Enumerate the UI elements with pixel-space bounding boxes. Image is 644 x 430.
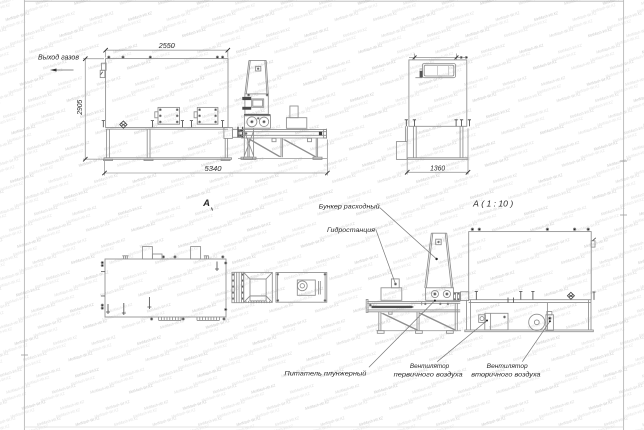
- svg-text:MetMash-Wr.KZ: MetMash-Wr.KZ: [638, 326, 644, 338]
- svg-text:Выход газов: Выход газов: [38, 53, 79, 62]
- svg-text:Питатель плунжерный: Питатель плунжерный: [284, 370, 366, 378]
- svg-text:Вентилятор: Вентилятор: [487, 363, 528, 370]
- svg-text:MetMash-Wr.KZ: MetMash-Wr.KZ: [0, 261, 6, 273]
- svg-text:Гидростанция: Гидростанция: [327, 226, 376, 234]
- svg-text:2905: 2905: [75, 99, 84, 116]
- svg-text:MetMash-Wr.KZ: MetMash-Wr.KZ: [0, 2, 11, 14]
- svg-text:Вентилятор: Вентилятор: [410, 363, 450, 370]
- svg-text:MetMash-Wr.KZ: MetMash-Wr.KZ: [637, 253, 644, 265]
- svg-text:5340: 5340: [205, 164, 223, 173]
- svg-text:А: А: [202, 198, 210, 209]
- svg-text:MetMash-Wr.KZ: MetMash-Wr.KZ: [639, 204, 644, 216]
- svg-text:MetMash-Wr.KZ: MetMash-Wr.KZ: [0, 213, 7, 225]
- svg-text:MetMash-Wr.KZ: MetMash-Wr.KZ: [0, 310, 5, 322]
- svg-text:MetMash-Wr.KZ: MetMash-Wr.KZ: [0, 67, 18, 79]
- svg-text:первичного воздуха: первичного воздуха: [394, 371, 463, 379]
- svg-text:MetMash-Wr.KZ: MetMash-Wr.KZ: [0, 99, 1, 111]
- svg-text:2550: 2550: [158, 41, 176, 50]
- svg-text:Бункер расходный: Бункер расходный: [319, 202, 380, 210]
- svg-text:MetMash-Wr.KZ: MetMash-Wr.KZ: [622, 358, 644, 370]
- svg-text:1360: 1360: [430, 163, 446, 172]
- svg-text:MetMash-Wr.KZ: MetMash-Wr.KZ: [640, 0, 644, 6]
- svg-text:вторичного воздуха: вторичного воздуха: [471, 371, 541, 379]
- svg-text:MetMash-Wr.KZ: MetMash-Wr.KZ: [640, 277, 644, 289]
- svg-text:MetMash-Wr.KZ: MetMash-Wr.KZ: [0, 358, 3, 370]
- svg-text:MetMash-Wr.KZ: MetMash-Wr.KZ: [0, 375, 12, 387]
- svg-text:MetMash-Wr.KZ: MetMash-Wr.KZ: [634, 164, 644, 176]
- svg-text:А ( 1 : 10 ): А ( 1 : 10 ): [472, 200, 513, 209]
- svg-text:MetMash-Wr.KZ: MetMash-Wr.KZ: [0, 51, 10, 63]
- svg-text:MetMash-Wr.KZ: MetMash-Wr.KZ: [623, 310, 644, 322]
